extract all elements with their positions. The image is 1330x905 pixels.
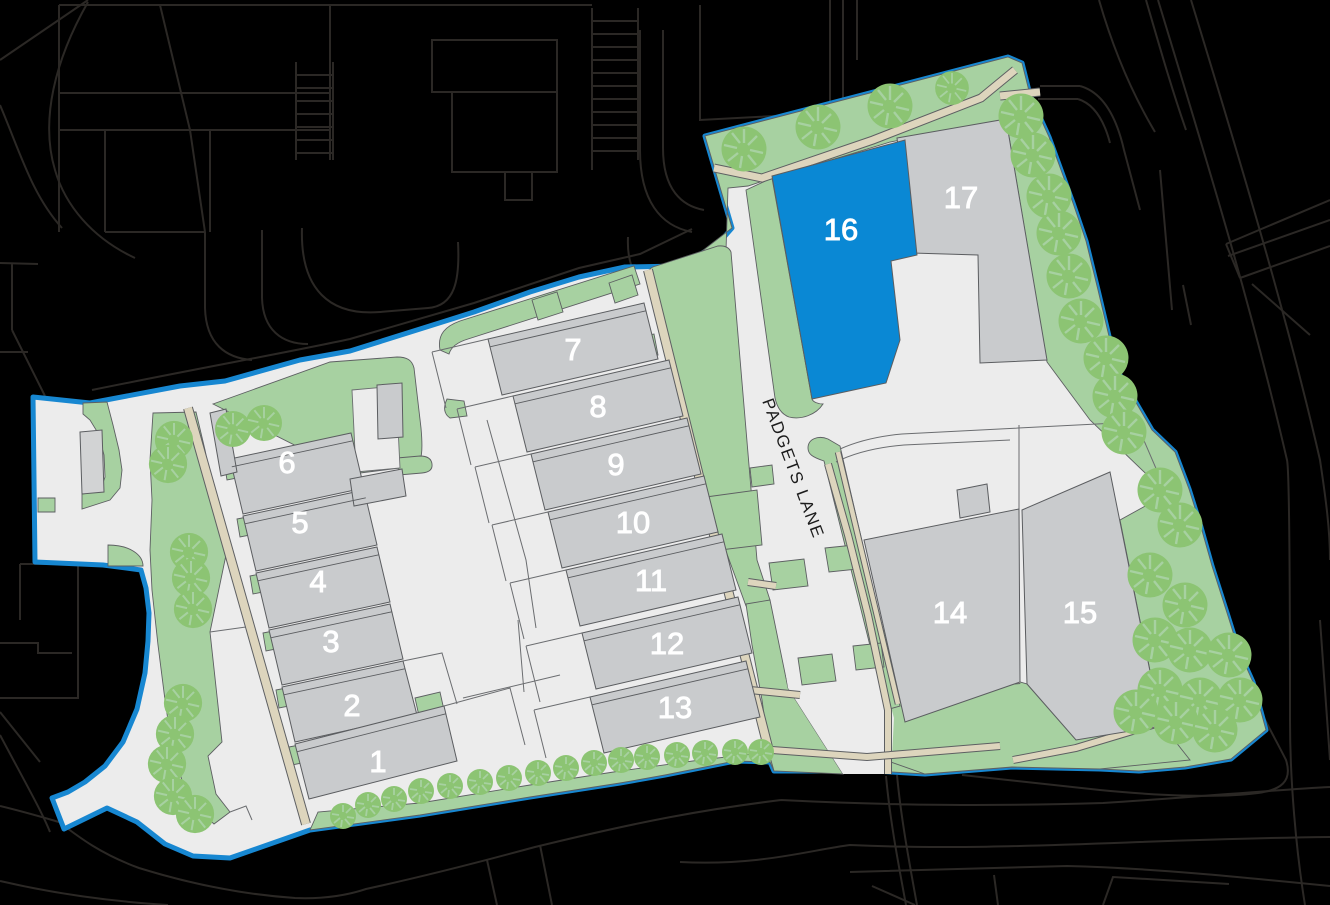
svg-text:3: 3: [322, 624, 339, 659]
svg-text:13: 13: [658, 690, 692, 725]
svg-text:10: 10: [616, 505, 650, 540]
svg-text:7: 7: [564, 332, 581, 367]
svg-text:15: 15: [1063, 595, 1097, 630]
svg-text:4: 4: [309, 564, 326, 599]
svg-text:17: 17: [944, 180, 978, 215]
svg-text:11: 11: [635, 563, 667, 598]
svg-text:8: 8: [589, 389, 606, 424]
svg-text:9: 9: [607, 447, 624, 482]
svg-text:1: 1: [369, 744, 386, 779]
svg-text:16: 16: [824, 212, 858, 247]
svg-text:14: 14: [933, 595, 967, 630]
svg-text:12: 12: [650, 626, 684, 661]
svg-text:5: 5: [291, 505, 308, 540]
svg-text:6: 6: [278, 445, 295, 480]
svg-text:2: 2: [343, 688, 360, 723]
